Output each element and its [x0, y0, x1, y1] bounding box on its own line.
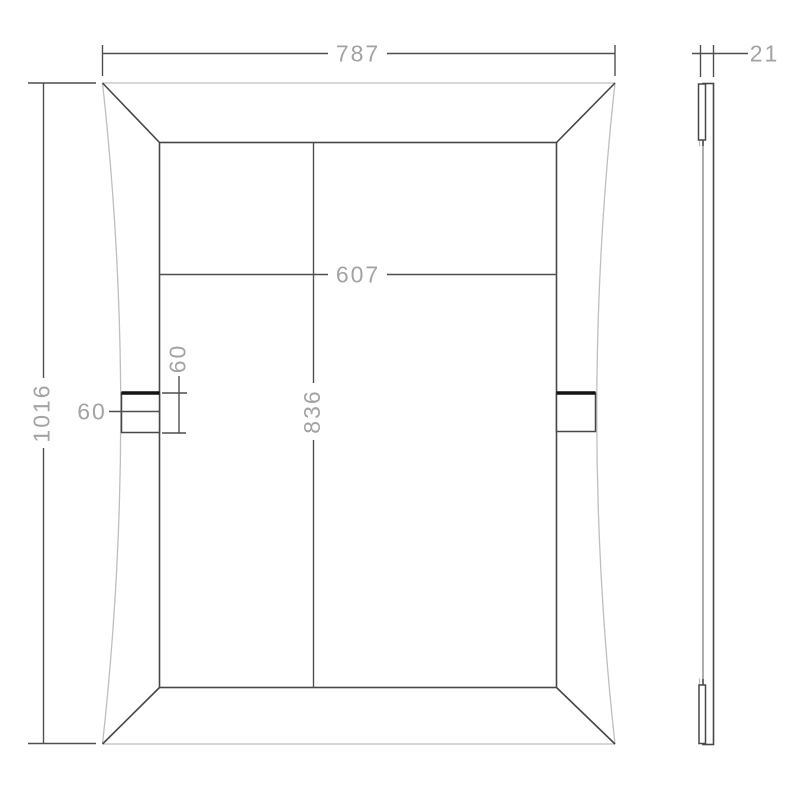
bevel-top-left-line — [103, 83, 160, 143]
technical-drawing-svg: 787 1016 607 836 60 — [0, 0, 800, 800]
bevel-top-right-line — [557, 83, 616, 143]
mounting-bracket-left-body — [122, 393, 160, 433]
front-view: 787 1016 607 836 60 — [28, 41, 615, 744]
bevel-bottom-right-line — [557, 688, 616, 745]
dimension-bracket-height: 60 — [162, 344, 191, 433]
dimension-overall-width: 787 — [103, 41, 616, 76]
side-panel-profile — [703, 84, 714, 745]
dimension-inner-height: 836 — [299, 143, 325, 688]
side-bracket-top — [699, 84, 706, 140]
dim-inner-width-label: 607 — [336, 262, 380, 288]
frame-inner-rect — [160, 143, 557, 688]
dim-inner-height-label: 836 — [299, 389, 325, 433]
side-view: 21 — [692, 41, 779, 745]
frame-outer-right-edge — [597, 83, 615, 744]
mounting-bracket-right — [557, 393, 596, 432]
dim-bracket-height-label: 60 — [165, 344, 191, 374]
mounting-bracket-right-body — [557, 393, 596, 432]
mounting-bracket-left — [122, 393, 160, 433]
dim-thickness-label: 21 — [750, 41, 780, 67]
dimension-inner-width: 607 — [160, 262, 557, 288]
dimension-thickness: 21 — [692, 41, 779, 77]
bevel-bottom-left-line — [103, 688, 160, 745]
dim-width-label: 787 — [336, 41, 380, 67]
side-bracket-bottom — [699, 685, 706, 744]
dim-bracket-width-label: 60 — [77, 399, 107, 425]
cad-drawing-canvas: 787 1016 607 836 60 — [0, 0, 800, 800]
dim-height-label: 1016 — [29, 383, 55, 442]
